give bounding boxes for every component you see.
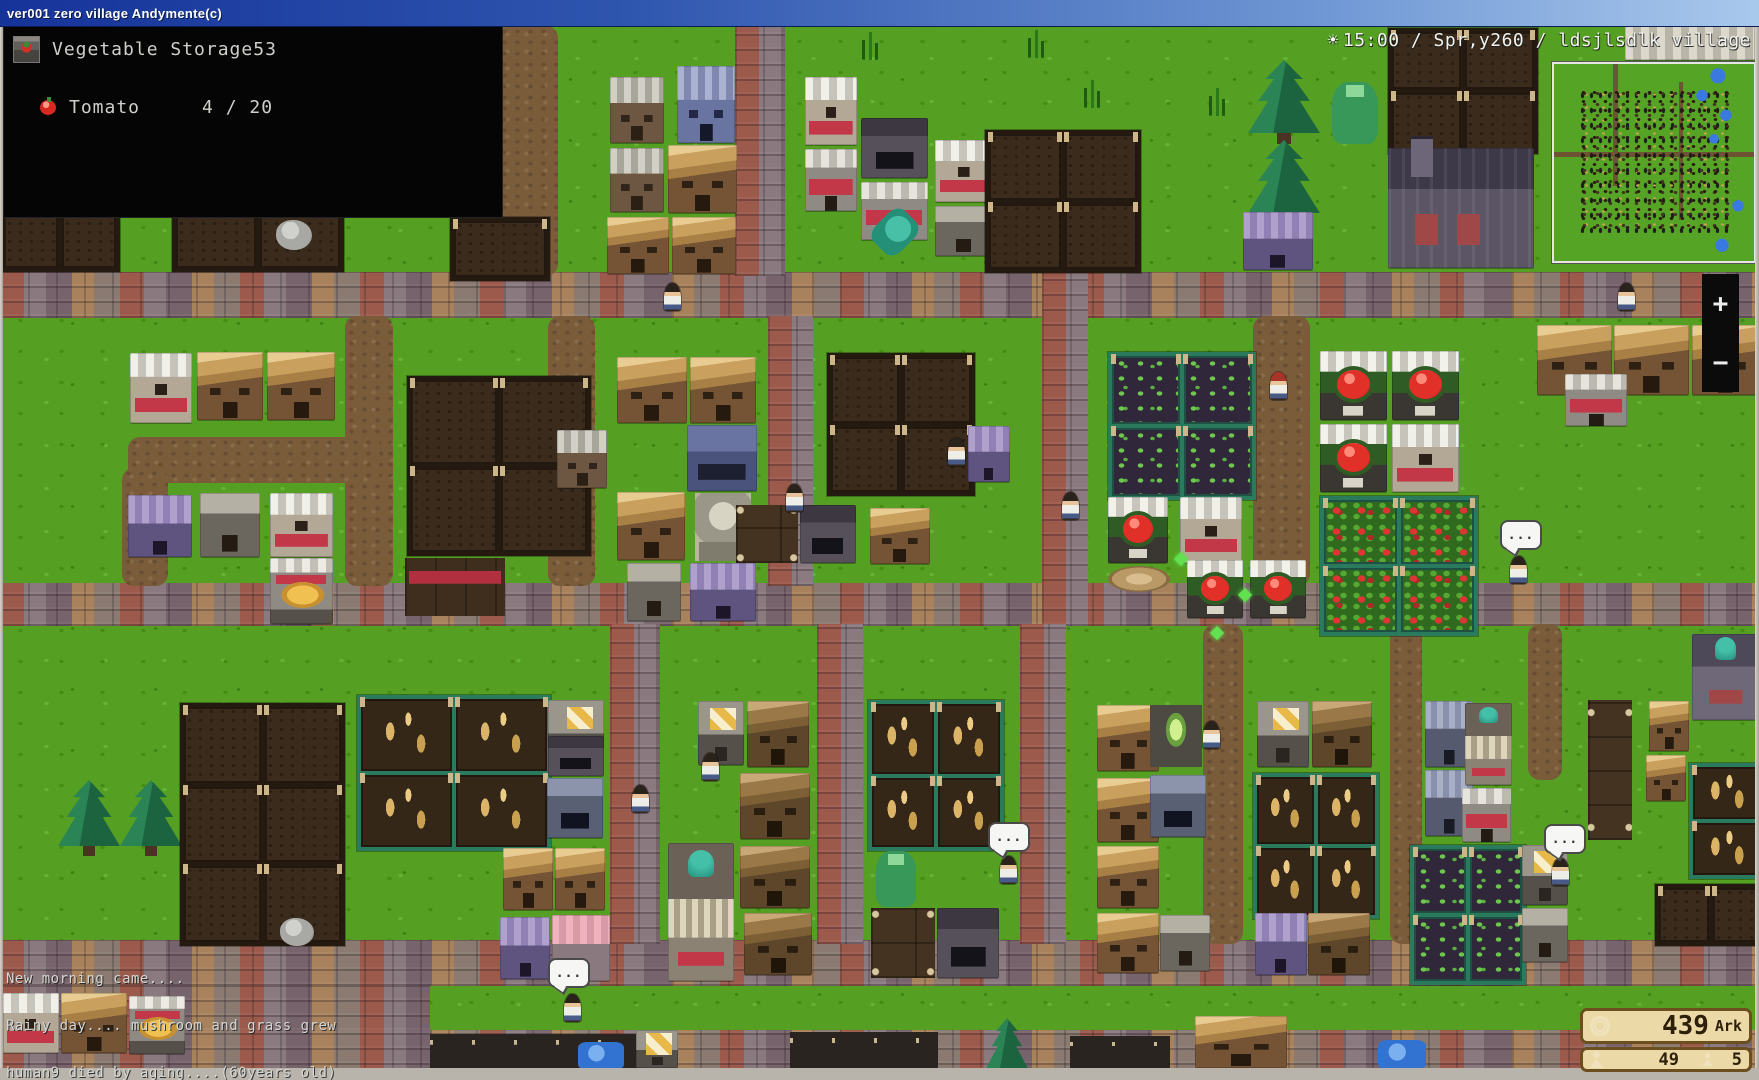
map-stump (1108, 566, 1170, 592)
map-road-brick-v (1042, 272, 1088, 626)
tomato-icon (40, 100, 56, 115)
map-tuft (1080, 80, 1104, 108)
map-factory-blue[interactable] (687, 425, 757, 491)
map-shop-bread[interactable] (270, 558, 333, 624)
map-hut-tan[interactable] (607, 217, 669, 274)
money-value: 439 (1610, 1011, 1709, 1041)
farm-plot (1324, 500, 1397, 564)
map-stall-tomato[interactable] (1320, 424, 1387, 492)
map-rock (276, 220, 312, 250)
map-farm-seedling[interactable] (1410, 845, 1526, 985)
map-hut-brown[interactable] (1308, 913, 1370, 975)
adult-count: 49 (1603, 1050, 1679, 1070)
money-row: 439 Ark (1580, 1008, 1752, 1044)
farm-plot (1401, 568, 1474, 632)
map-farm-dark[interactable] (1655, 884, 1759, 946)
zoom-in-button[interactable]: + (1702, 274, 1739, 333)
map-house-purple[interactable] (690, 563, 756, 621)
map-shop-white[interactable] (270, 493, 333, 557)
farm-plot (1693, 767, 1759, 819)
window-title: ver001 zero village Andymente(c) (7, 6, 222, 21)
map-pine (986, 1018, 1028, 1068)
minimap[interactable] (1552, 62, 1756, 263)
map-water (578, 1042, 624, 1068)
map-villager[interactable] (564, 994, 581, 1022)
map-villager[interactable] (664, 283, 681, 311)
map-farm-dark[interactable] (827, 353, 975, 496)
farm-plot (456, 775, 547, 847)
map-house-blue[interactable] (677, 66, 735, 143)
map-pine (1248, 60, 1320, 144)
farm-plot (989, 204, 1061, 270)
map-hut-tan[interactable] (503, 848, 553, 910)
zoom-controls: + − (1702, 274, 1739, 392)
map-store-dark[interactable] (800, 505, 856, 563)
farm-plot (411, 468, 497, 552)
map-house-gray[interactable] (557, 430, 607, 488)
map-house-purple[interactable] (128, 495, 192, 557)
storage-panel-title: Vegetable Storage53 (52, 39, 277, 60)
farm-plot (361, 775, 452, 847)
map-store-gray[interactable] (1160, 915, 1210, 971)
map-altar[interactable] (1150, 705, 1202, 767)
map-storage-dark-row[interactable] (1070, 1036, 1170, 1068)
map-hut-tan[interactable] (197, 352, 263, 420)
map-hut-tan[interactable] (617, 492, 685, 560)
map-store-dark[interactable] (937, 908, 999, 978)
farm-plot (1065, 204, 1137, 270)
farm-plot (265, 707, 342, 783)
map-house-purple[interactable] (968, 426, 1010, 482)
sun-icon: ☀ (1328, 30, 1339, 51)
window-border-right (1755, 26, 1759, 1068)
zoom-out-button[interactable]: − (1702, 333, 1739, 392)
map-house-purple[interactable] (1255, 913, 1307, 975)
farm-plot (1414, 849, 1466, 913)
map-storage-brown[interactable] (1588, 700, 1632, 840)
farm-plot (454, 221, 546, 277)
map-road-dirt-v (1203, 624, 1243, 944)
farm-plot (184, 866, 261, 942)
map-farm-wheat[interactable] (1253, 773, 1379, 919)
map-house-gray[interactable] (610, 77, 664, 143)
map-road-brick-v (817, 624, 863, 944)
farm-plot (456, 699, 547, 771)
storage-item-name: Tomato (69, 97, 140, 118)
clock-text: 15:00 / Spr,y260 / ldsjlsdlk village (1343, 30, 1751, 51)
map-tuft (858, 32, 882, 60)
map-shop-red[interactable] (1462, 788, 1511, 842)
farm-plot (831, 357, 899, 423)
map-road-dirt-v (1528, 624, 1562, 780)
farm-plot (1465, 93, 1534, 150)
game-window: ............ Vegetable Storage53 Tomato … (0, 0, 1759, 1080)
vegetable-storage-icon (13, 36, 40, 63)
map-stall-tomato[interactable] (1320, 351, 1387, 420)
farm-plot (1470, 849, 1522, 913)
map-pine (58, 780, 120, 856)
farm-plot (1257, 848, 1314, 915)
map-villager[interactable] (702, 753, 719, 781)
map-stall-tomato[interactable] (1108, 497, 1168, 563)
map-shop-flag[interactable] (1257, 701, 1309, 767)
map-church-large[interactable] (1692, 634, 1759, 720)
child-icon (1702, 1053, 1712, 1067)
map-stall-tomato[interactable] (1187, 560, 1243, 618)
farm-plot (1257, 777, 1314, 844)
farm-plot (184, 707, 261, 783)
map-hut-brown[interactable] (740, 846, 810, 908)
map-store-slate[interactable] (547, 778, 603, 838)
currency-unit: Ark (1715, 1017, 1742, 1035)
map-pine (120, 780, 182, 856)
map-hut-tan[interactable] (870, 508, 930, 564)
map-hut-tan[interactable] (1195, 1016, 1287, 1068)
map-hut-tan[interactable] (1097, 913, 1159, 973)
farm-plot (1112, 428, 1180, 496)
map-road-dirt-v (1253, 316, 1310, 586)
log-line: New morning came.... (6, 972, 372, 988)
map-hut-brown[interactable] (1312, 701, 1372, 767)
map-bubble: ... (988, 822, 1030, 852)
map-hut-brown[interactable] (744, 913, 812, 975)
farm-plot (1184, 356, 1252, 424)
map-villager[interactable] (1552, 858, 1569, 886)
farm-plot (1470, 917, 1522, 981)
map-tuft (1205, 88, 1229, 116)
map-house-gray[interactable] (610, 148, 664, 212)
farm-plot (872, 778, 934, 848)
map-hut-tan[interactable] (555, 848, 605, 910)
farm-plot (184, 787, 261, 863)
child-count: 5 (1714, 1050, 1742, 1070)
population-row: 49 5 (1580, 1047, 1752, 1072)
storage-item-row: Tomato 4 / 20 (40, 97, 502, 118)
map-stall-tomato[interactable] (1250, 560, 1306, 618)
map-road-brick-v (610, 624, 660, 944)
map-villager-red[interactable] (1270, 372, 1287, 400)
map-farm-wheat[interactable] (357, 695, 551, 851)
farm-plot (1065, 134, 1137, 200)
map-hut-tan[interactable] (690, 357, 756, 423)
farm-plot (831, 427, 899, 493)
map-cactus (1332, 82, 1378, 144)
map-bubble: ... (548, 958, 590, 988)
map-road-brick (0, 583, 1759, 626)
farm-plot (1713, 888, 1759, 942)
farm-plot (411, 380, 497, 464)
map-farm-tomato[interactable] (1320, 496, 1478, 636)
coin-icon (1590, 1016, 1610, 1036)
map-manor[interactable] (1388, 148, 1534, 268)
map-hut-brown[interactable] (747, 701, 809, 767)
map-hut-tan[interactable] (668, 145, 737, 213)
farm-plot (989, 134, 1061, 200)
farm-plot (265, 787, 342, 863)
map-store-gray[interactable] (200, 493, 260, 557)
map-house-purple[interactable] (500, 917, 550, 979)
map-hut-tan[interactable] (1649, 701, 1689, 751)
map-church[interactable] (1465, 703, 1512, 785)
map-farm-seedling[interactable] (1108, 352, 1256, 500)
map-water (1378, 1040, 1426, 1068)
map-bubble: ... (1544, 824, 1586, 854)
map-shop-white[interactable] (805, 77, 857, 145)
map-shop-flag[interactable] (636, 1030, 678, 1068)
map-shop-red[interactable] (805, 149, 857, 211)
map-house-purple[interactable] (1243, 212, 1313, 270)
map-church[interactable] (668, 843, 734, 981)
map-road-brick (0, 272, 1759, 318)
map-villager[interactable] (1203, 721, 1220, 749)
map-storage-brown[interactable] (871, 908, 935, 978)
map-store-gray[interactable] (1522, 908, 1568, 962)
log-line: human9 died by aging....(60years old) (6, 1066, 372, 1080)
map-villager[interactable] (786, 484, 803, 512)
farm-plot (903, 357, 971, 423)
map-villager[interactable] (948, 438, 965, 466)
map-farm-dark[interactable] (985, 130, 1141, 273)
map-shop-white[interactable] (1392, 424, 1459, 492)
adult-icon (1590, 1051, 1603, 1068)
farm-plot (1659, 888, 1709, 942)
map-farm-dark[interactable] (180, 703, 345, 946)
farm-plot (1693, 823, 1759, 875)
map-hut-brown[interactable] (740, 773, 810, 839)
map-villager[interactable] (1618, 283, 1635, 311)
map-villager[interactable] (632, 785, 649, 813)
resource-panel: 439 Ark 49 5 (1580, 1008, 1752, 1075)
map-hut-tan[interactable] (1097, 846, 1159, 908)
map-shop-white[interactable] (1180, 497, 1242, 563)
farm-plot (1401, 500, 1474, 564)
farm-plot (872, 704, 934, 774)
storage-info-panel: Vegetable Storage53 Tomato 4 / 20 (3, 26, 503, 218)
farm-plot (938, 704, 1000, 774)
map-shop-white[interactable] (130, 353, 192, 423)
map-store-dark[interactable] (861, 118, 928, 178)
event-log: New morning came.... Rainy day.... mushr… (6, 941, 372, 1080)
farm-plot (1184, 428, 1252, 496)
map-hut-tan[interactable] (1646, 755, 1686, 801)
map-store-dark[interactable] (548, 736, 604, 776)
map-farm-wheat[interactable] (1689, 763, 1759, 879)
map-shop-red[interactable] (1565, 374, 1627, 426)
map-storage-brown[interactable] (736, 505, 798, 563)
farm-plot (1414, 917, 1466, 981)
map-storage-dark-row[interactable] (790, 1032, 938, 1068)
map-store-gray[interactable] (627, 563, 681, 621)
map-villager[interactable] (1510, 556, 1527, 584)
map-hut-tan[interactable] (672, 217, 736, 274)
map-tuft (1024, 30, 1048, 58)
map-farm-dark[interactable] (450, 217, 550, 281)
map-farm-wheat[interactable] (868, 700, 1004, 851)
map-store-slate[interactable] (1150, 775, 1206, 837)
farm-plot (1318, 848, 1375, 915)
farm-plot (1112, 356, 1180, 424)
farm-plot (1318, 777, 1375, 844)
map-villager[interactable] (1062, 492, 1079, 520)
map-road-brick-v (1020, 624, 1066, 944)
map-stall-tomato[interactable] (1392, 351, 1459, 420)
clock-display: ☀15:00 / Spr,y260 / ldsjlsdlk village (1328, 30, 1751, 51)
farm-plot (361, 699, 452, 771)
log-line: Rainy day.... mushroom and grass grew (6, 1019, 372, 1035)
map-villager[interactable] (1000, 856, 1017, 884)
farm-plot (1324, 568, 1397, 632)
map-hut-tan[interactable] (267, 352, 335, 420)
map-storage-red[interactable] (405, 558, 505, 616)
title-bar[interactable]: ver001 zero village Andymente(c) (0, 0, 1759, 27)
window-border-left (0, 26, 3, 1068)
map-cactus (876, 851, 916, 907)
map-bubble: ... (1500, 520, 1542, 550)
storage-item-count: 4 / 20 (202, 97, 273, 118)
map-hut-tan[interactable] (617, 357, 687, 423)
map-road-brick-v (735, 26, 785, 276)
